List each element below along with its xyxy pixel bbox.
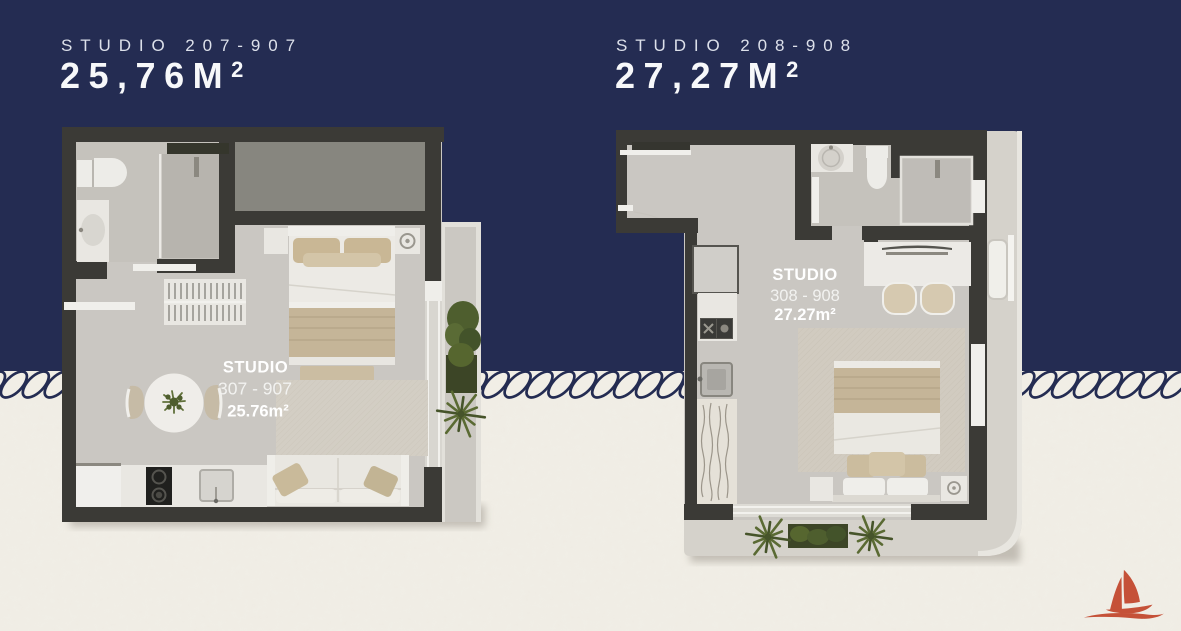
svg-text:STUDIO: STUDIO (772, 266, 837, 284)
svg-text:308 - 908: 308 - 908 (770, 287, 840, 305)
svg-text:27.27m²: 27.27m² (774, 306, 836, 324)
svg-text:307 - 907: 307 - 907 (218, 379, 292, 399)
svg-text:25.76m²: 25.76m² (227, 403, 289, 421)
svg-text:STUDIO: STUDIO (223, 359, 288, 377)
